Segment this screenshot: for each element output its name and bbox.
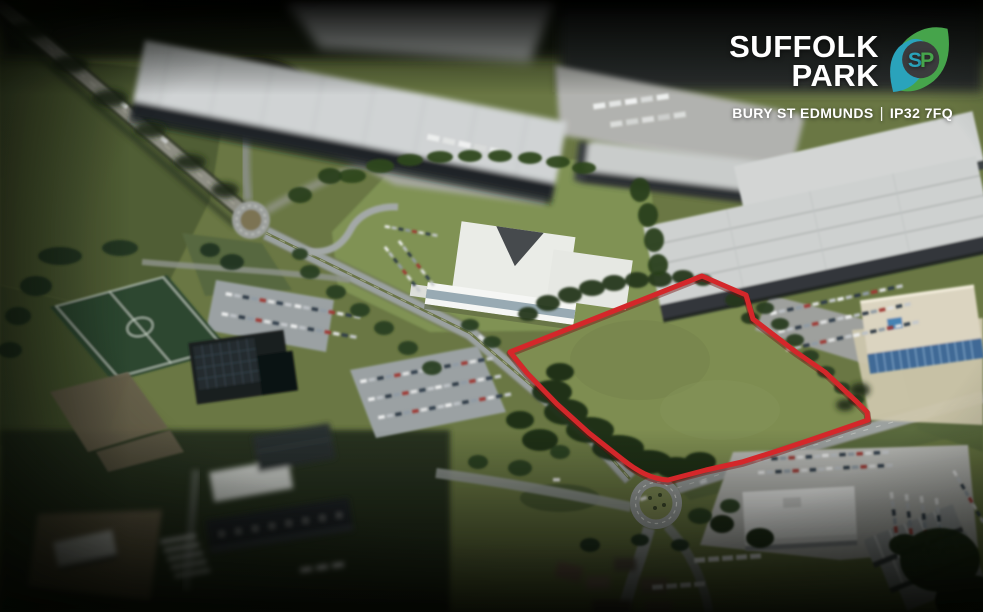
brand-logo-row: SUFFOLK PARK SP xyxy=(729,26,953,96)
aerial-photo: SUFFOLK PARK SP BURY ST EDMUNDS|IP32 7FQ xyxy=(0,0,983,612)
divider-bar: | xyxy=(874,105,890,122)
brand-location: BURY ST EDMUNDS xyxy=(732,105,873,121)
brand-location-line: BURY ST EDMUNDS|IP32 7FQ xyxy=(732,105,953,122)
sp-leaf-monogram-icon: SP xyxy=(887,26,953,96)
svg-text:SP: SP xyxy=(908,48,934,72)
brand-logo: SUFFOLK PARK SP BURY ST EDMUNDS|IP32 7FQ xyxy=(729,26,953,122)
monogram-letter-p: P xyxy=(920,48,934,72)
brand-name-line2: PARK xyxy=(729,61,879,90)
brand-postcode: IP32 7FQ xyxy=(890,105,953,121)
brand-name: SUFFOLK PARK xyxy=(729,32,879,91)
brand-name-line1: SUFFOLK xyxy=(729,32,879,61)
